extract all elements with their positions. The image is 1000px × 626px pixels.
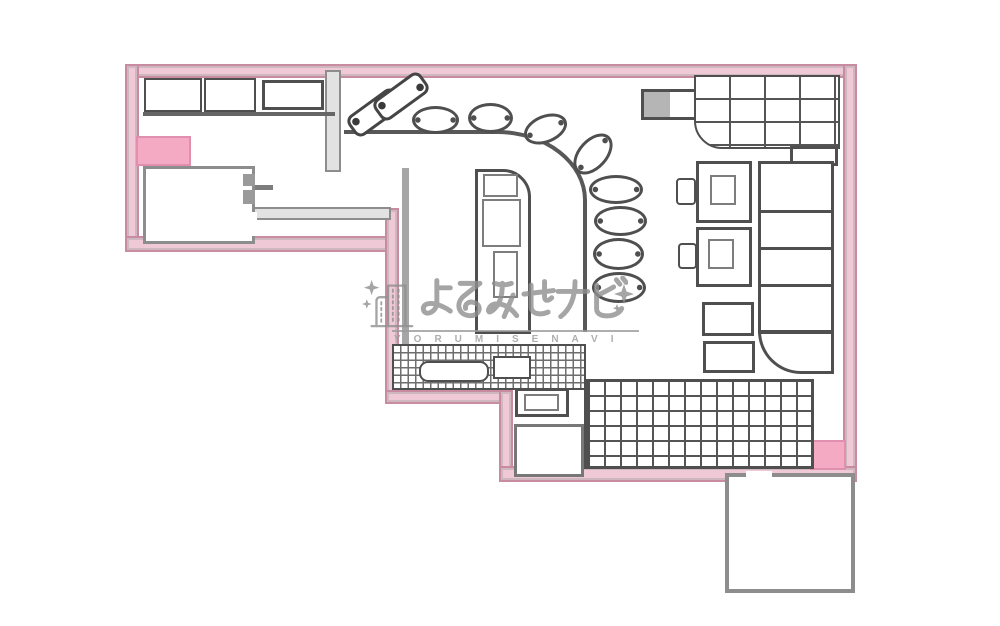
bench-divider-1: [761, 210, 831, 213]
bar-island-equipment-3: [493, 251, 518, 298]
counter-stool-6: [594, 206, 647, 236]
chair-1: [676, 178, 696, 205]
grid-floor-area: [584, 379, 814, 469]
counter-stool-8: [592, 272, 646, 303]
small-table-2: [703, 341, 755, 373]
bench-seating: [758, 161, 834, 333]
bar-island-equipment-1: [483, 174, 518, 197]
room-extension-bottom-right: [725, 473, 855, 593]
outer-wall-mid-horizontal: [385, 390, 513, 404]
room-lower-left: [143, 166, 255, 244]
bar-island-equipment-2: [482, 199, 521, 247]
shelf-grid-top-right: [694, 75, 840, 149]
door-opening-room: [247, 212, 257, 236]
kitchen-cabinet-2: [204, 78, 256, 112]
bar-counter-edge: [344, 130, 587, 332]
chair-2: [678, 243, 697, 269]
door-opening-extension: [746, 471, 772, 481]
counter-stool-2: [468, 103, 513, 133]
partition-wall-kitchen: [325, 70, 341, 172]
outer-wall-right: [843, 64, 857, 480]
service-counter-item-1: [419, 361, 489, 382]
entrance-highlight-bottom-right: [810, 440, 846, 470]
bench-divider-2: [761, 247, 831, 250]
counter-stool-7: [593, 238, 644, 270]
dining-table-2-top: [708, 239, 734, 269]
room-wall-fixture-1: [243, 174, 255, 186]
fixture-box-top: [524, 394, 559, 411]
counter-stool-5: [589, 175, 643, 204]
floor-plan-canvas: YORUMISENAVI: [0, 0, 1000, 626]
door-tick: [255, 185, 273, 190]
entrance-highlight-left: [136, 136, 191, 166]
kitchen-counter-edge: [143, 112, 335, 116]
bench-curved-end: [758, 331, 834, 374]
counter-stool-1: [412, 106, 459, 134]
equipment-box-shaded-cell: [644, 92, 670, 117]
service-room: [514, 424, 584, 477]
kitchen-cabinet-1: [144, 78, 202, 112]
bench-divider-3: [761, 284, 831, 287]
kitchen-cabinet-3: [262, 80, 324, 110]
equipment-box: [641, 89, 697, 120]
dining-table-1-top: [710, 175, 736, 205]
service-counter-item-2: [493, 356, 531, 379]
small-table-1: [702, 302, 754, 336]
room-wall-fixture-2: [243, 190, 255, 204]
